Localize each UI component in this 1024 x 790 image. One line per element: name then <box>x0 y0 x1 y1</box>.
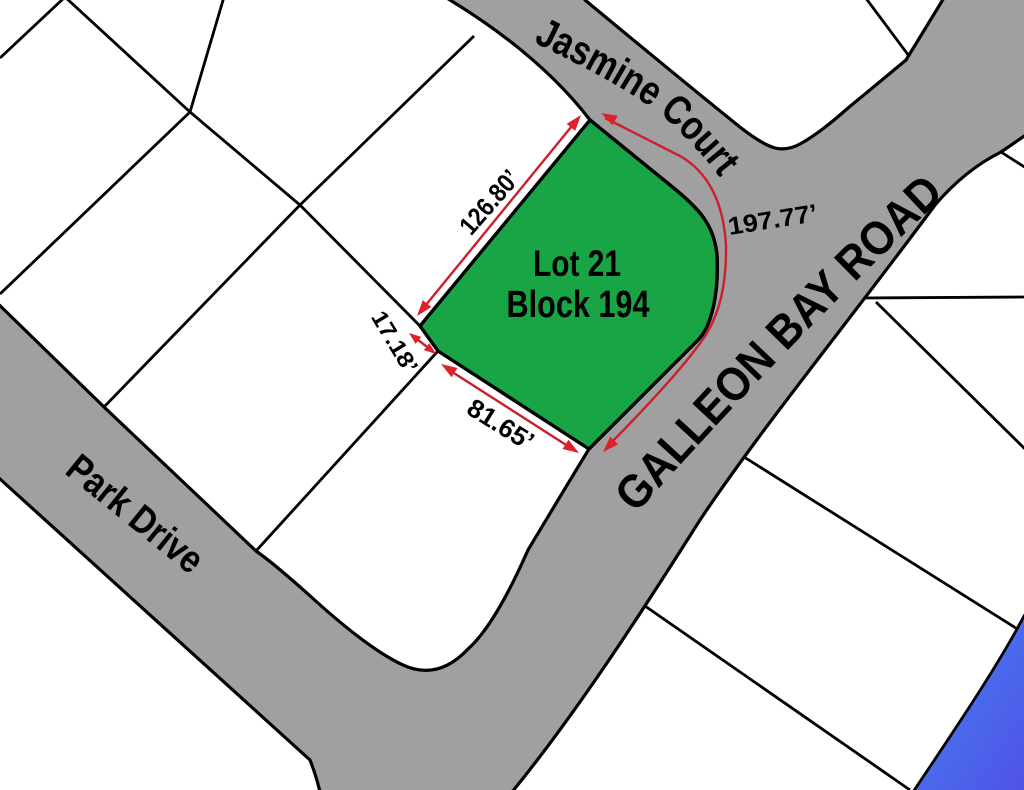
svg-text:Lot 21: Lot 21 <box>533 243 621 284</box>
svg-text:Block 194: Block 194 <box>507 284 650 326</box>
